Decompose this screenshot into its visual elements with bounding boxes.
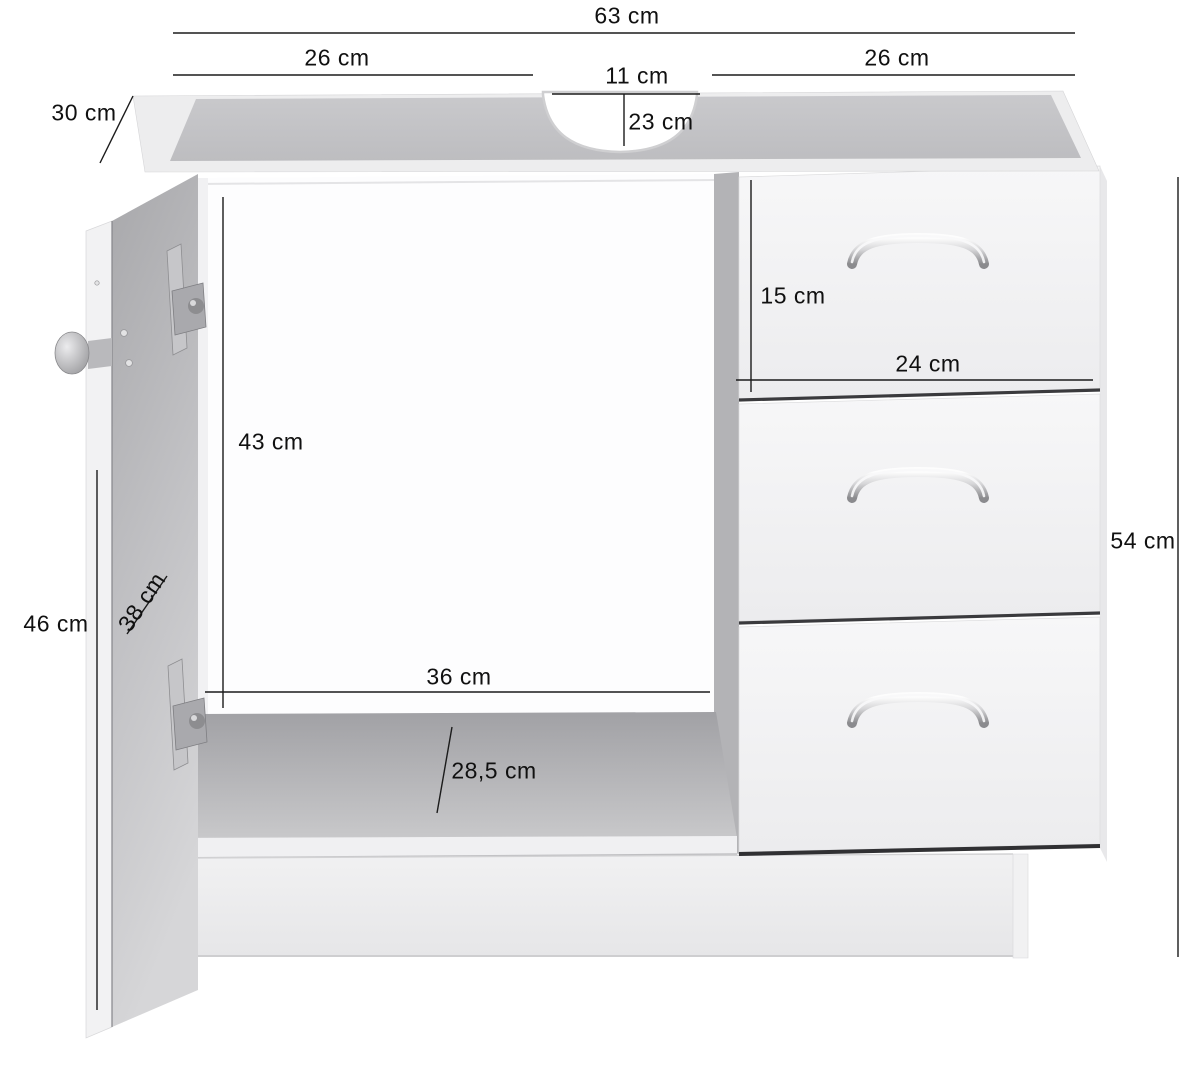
drawer-unit (739, 166, 1107, 862)
door-screw-2 (126, 360, 133, 367)
dim-label-top-left-width: 26 cm (304, 47, 369, 70)
cabinet-right-side (1100, 166, 1107, 862)
door-screw-small (95, 281, 99, 285)
interior-compartment (157, 172, 739, 858)
dim-label-interior-width: 36 cm (426, 666, 491, 689)
interior-floor (157, 712, 737, 838)
dimension-diagram: 63 cm 26 cm 11 cm 26 cm 30 cm 23 cm 15 c… (0, 0, 1200, 1076)
dim-label-drawer-width: 24 cm (895, 353, 960, 376)
dim-label-total-width: 63 cm (594, 5, 659, 28)
dim-label-cabinet-height: 54 cm (1110, 530, 1175, 553)
drawer-3-front (739, 617, 1100, 852)
dim-label-drawer-height: 15 cm (760, 285, 825, 308)
plinth-right-post (1013, 854, 1028, 958)
dim-label-top-right-width: 26 cm (864, 47, 929, 70)
dim-label-door-height: 46 cm (23, 613, 88, 636)
dim-label-cutout-width: 11 cm (605, 65, 668, 88)
dim-label-base-depth: 28,5 cm (451, 760, 536, 783)
cabinet-illustration (0, 0, 1200, 1076)
dim-label-interior-height: 43 cm (238, 431, 303, 454)
plinth-front-panel (175, 854, 1013, 957)
plinth (133, 854, 1028, 958)
drawer-2-front (739, 394, 1100, 621)
cabinet-top (133, 91, 1099, 172)
dim-label-depth: 30 cm (51, 102, 116, 125)
door-screw-1 (121, 330, 128, 337)
interior-left-shadow (198, 178, 208, 716)
dim-label-cutout-depth: 23 cm (628, 111, 693, 134)
